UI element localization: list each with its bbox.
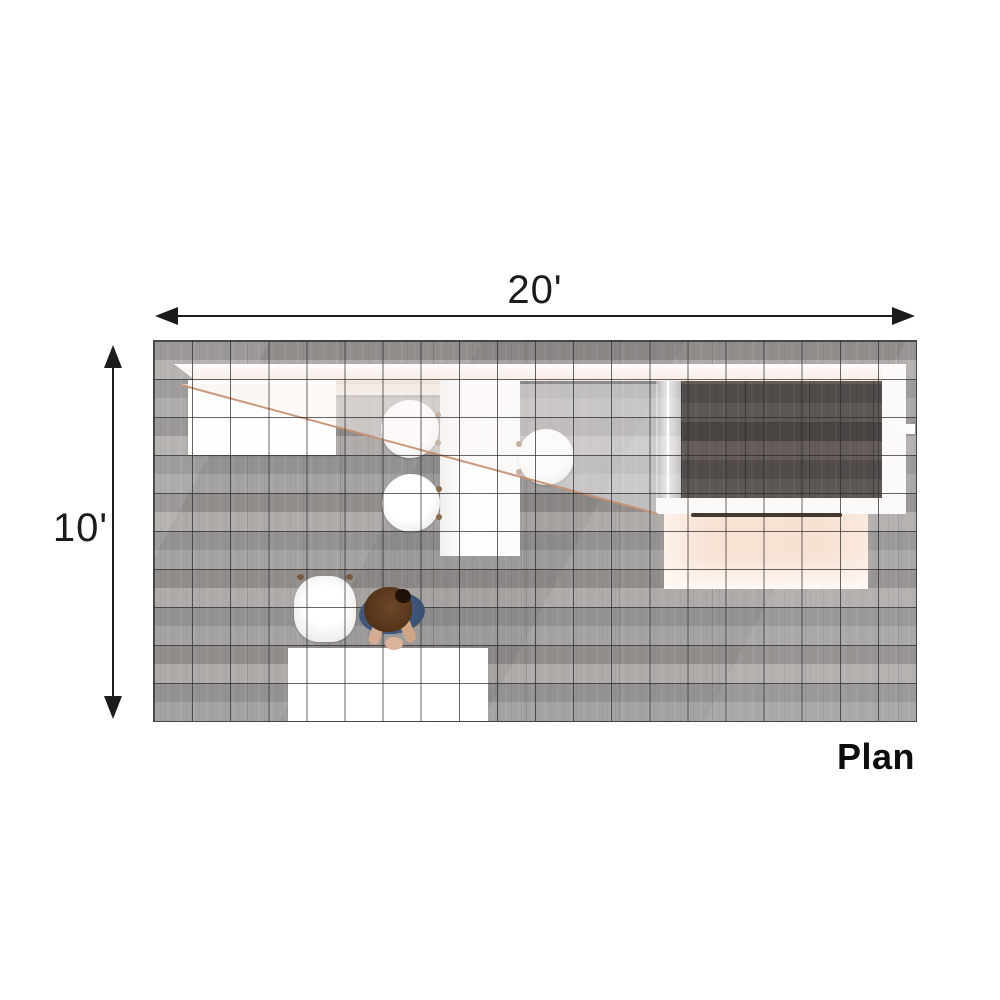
depth-dimension-label: 10' xyxy=(30,506,108,551)
horizontal-dimension-arrow xyxy=(158,315,912,317)
one-foot-grid xyxy=(154,341,916,721)
booth-floor xyxy=(153,340,917,722)
vertical-dimension-arrow xyxy=(112,348,114,716)
standing-person xyxy=(357,587,427,653)
width-dimension-label: 20' xyxy=(155,268,915,313)
view-name-label: Plan xyxy=(700,736,915,778)
person-hands xyxy=(385,637,403,650)
plan-sheet: 20' 10' Plan xyxy=(0,0,1000,1000)
